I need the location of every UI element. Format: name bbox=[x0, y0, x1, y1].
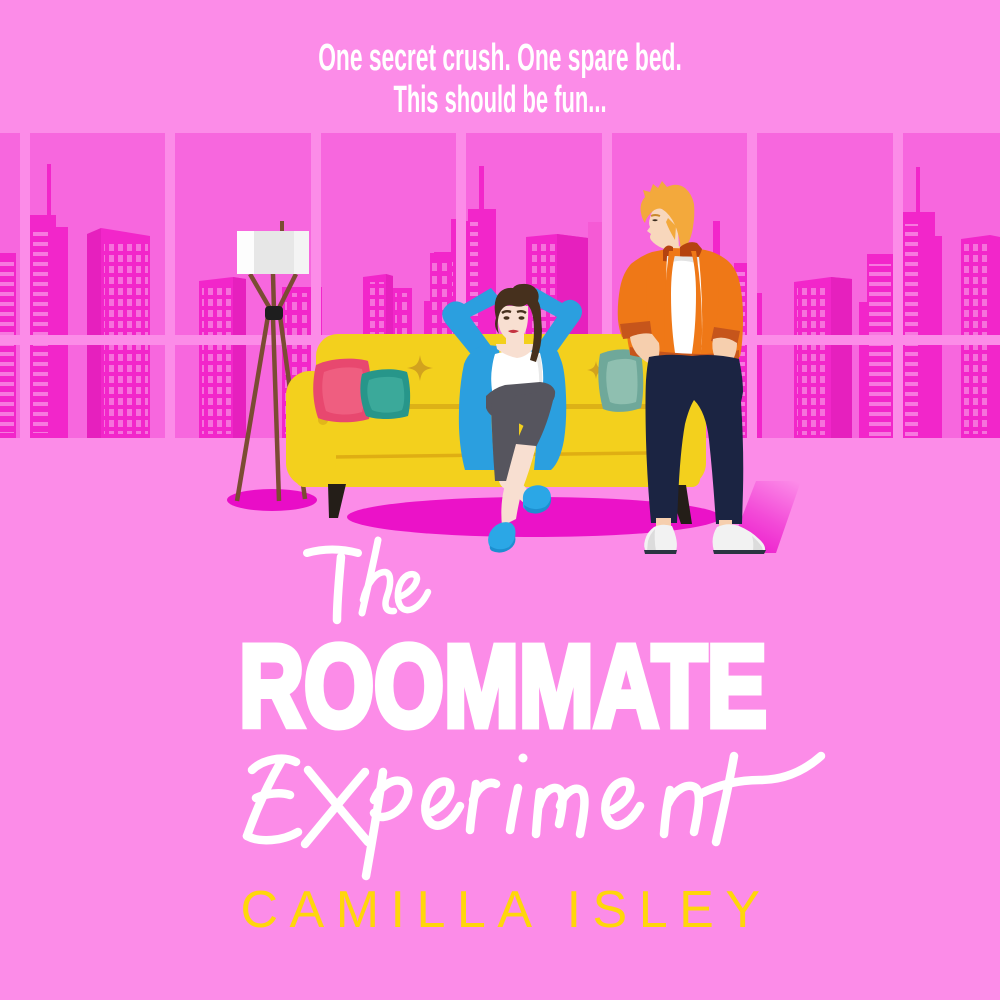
svg-text:One secret crush. One spare be: One secret crush. One spare bed. bbox=[318, 36, 682, 78]
svg-text:This should be fun...: This should be fun... bbox=[393, 78, 606, 121]
svg-text:ROOMMATE: ROOMMATE bbox=[239, 621, 767, 751]
svg-text:CAMILLA ISLEY: CAMILLA ISLEY bbox=[240, 881, 771, 939]
